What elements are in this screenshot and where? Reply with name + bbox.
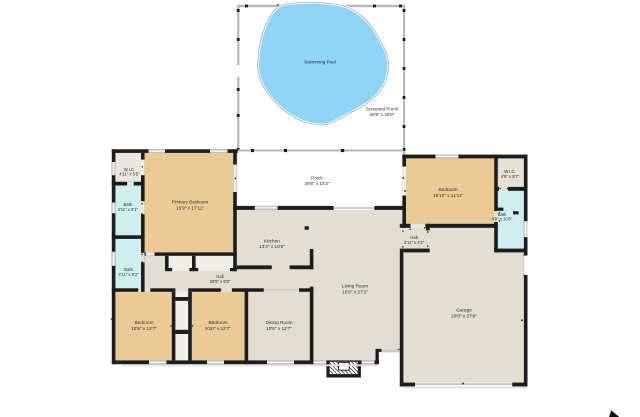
svg-text:Primary Bedroom: Primary Bedroom <box>172 200 209 205</box>
svg-text:15'10" x 11'11": 15'10" x 11'11" <box>433 193 464 198</box>
svg-text:13'4" x 10'5": 13'4" x 10'5" <box>259 244 285 249</box>
svg-text:Screened Porch: Screened Porch <box>366 107 399 112</box>
svg-text:3'11" x 4'2": 3'11" x 4'2" <box>404 240 425 245</box>
svg-text:29'8" x 29'8": 29'8" x 29'8" <box>370 112 395 117</box>
svg-text:16'8" x 27'2": 16'8" x 27'2" <box>342 289 368 294</box>
svg-text:Bedroom: Bedroom <box>438 187 457 192</box>
svg-text:29'5" x 6'0": 29'5" x 6'0" <box>210 279 231 284</box>
svg-text:4'11" x 9'1": 4'11" x 9'1" <box>118 207 139 212</box>
svg-text:Kitchen: Kitchen <box>264 238 280 243</box>
svg-text:20'8" x 27'9": 20'8" x 27'9" <box>451 314 477 319</box>
svg-text:4'11" x 5'5": 4'11" x 5'5" <box>119 172 140 177</box>
svg-text:4'9" x 10'5": 4'9" x 10'5" <box>492 217 513 222</box>
svg-text:Dining Room: Dining Room <box>265 320 292 325</box>
svg-text:10'5" x 12'7": 10'5" x 12'7" <box>131 326 157 331</box>
svg-text:10'8" x 12'7": 10'8" x 12'7" <box>266 326 292 331</box>
svg-text:9'10" x 12'7": 9'10" x 12'7" <box>205 326 231 331</box>
svg-text:Swimming Pool: Swimming Pool <box>304 60 336 65</box>
svg-text:Garage: Garage <box>456 308 472 313</box>
svg-text:4'9" x 5'7": 4'9" x 5'7" <box>501 174 520 179</box>
svg-text:29'8" x 10'3": 29'8" x 10'3" <box>305 181 330 186</box>
svg-text:Living Room: Living Room <box>342 284 368 289</box>
svg-text:15'9" x 17'11": 15'9" x 17'11" <box>176 205 204 210</box>
svg-text:Bedroom: Bedroom <box>208 320 227 325</box>
svg-text:4'11" x 9'2": 4'11" x 9'2" <box>118 272 139 277</box>
svg-text:Porch: Porch <box>311 176 323 181</box>
svg-text:Bedroom: Bedroom <box>134 320 153 325</box>
